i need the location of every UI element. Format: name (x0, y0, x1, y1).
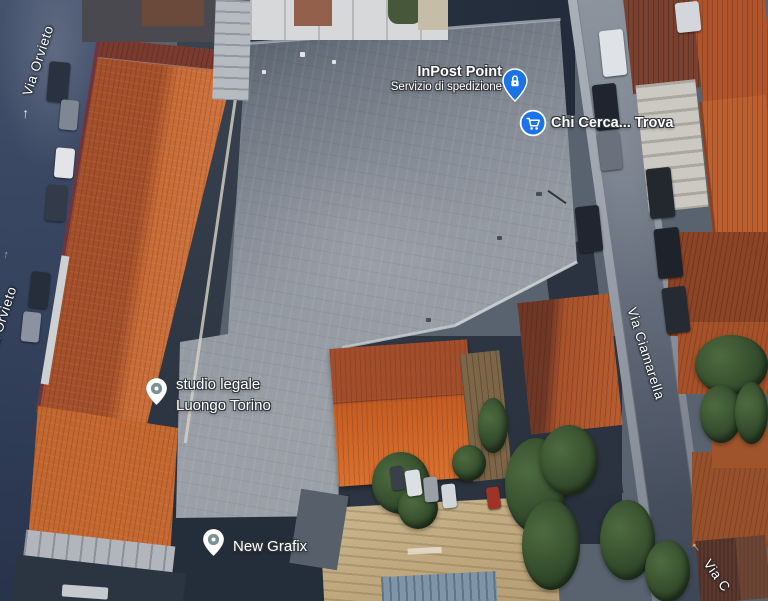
roof-vent-strip (408, 547, 442, 555)
block-topleft-dark (82, 0, 217, 42)
building-orange-roof-ne2 (699, 95, 768, 239)
roof-lighter-part (735, 535, 768, 600)
building-orange-mid-east (517, 294, 622, 435)
dark-car (46, 61, 70, 103)
tree (540, 425, 598, 495)
roof-vent (536, 192, 542, 196)
gray-car (20, 311, 41, 343)
dark-car (645, 167, 675, 219)
gray-car (59, 99, 80, 130)
roof-beige-patch (418, 0, 448, 30)
poi-inpost-subtitle: Servizio di spedizione (338, 81, 502, 93)
gray-car (423, 476, 439, 502)
white-car (54, 147, 76, 179)
tree (645, 540, 690, 601)
roof-ridge-line (333, 393, 471, 404)
roof-panel-blue (381, 571, 498, 601)
dark-car (575, 205, 604, 253)
dark-car (653, 227, 683, 279)
generic-poi-pin-icon[interactable] (202, 528, 225, 557)
roof-patch-redbrown (142, 0, 204, 26)
gray-car (597, 131, 623, 171)
poi-studio-legale-line2: Luongo Torino (176, 397, 271, 414)
chimney (300, 52, 305, 57)
roof-vent (426, 318, 431, 322)
tree-top (388, 0, 422, 24)
poi-studio-legale-label[interactable]: studio legale Luongo Torino (176, 376, 271, 414)
poi-inpost-title[interactable]: InPost Point (338, 64, 502, 80)
generic-poi-pin-icon[interactable] (145, 377, 168, 406)
white-car (599, 29, 628, 77)
tree (478, 398, 508, 453)
building-top-light-column (212, 0, 251, 101)
white-car (441, 483, 457, 508)
shopping-cart-circle-icon[interactable] (519, 109, 547, 137)
poi-studio-legale-line1[interactable]: studio legale (176, 376, 271, 393)
dark-car (44, 184, 67, 222)
chimney (332, 60, 336, 64)
tree (735, 382, 768, 444)
chimney (262, 70, 266, 74)
building-top-white-row (250, 0, 448, 40)
tree (522, 500, 580, 590)
poi-new-grafix-label[interactable]: New Grafix (233, 538, 307, 555)
poi-inpost-label[interactable]: InPost Point Servizio di spedizione (338, 64, 502, 93)
white-car (674, 1, 701, 33)
inpost-lock-pin-icon[interactable] (502, 68, 528, 102)
satellite-map-canvas[interactable]: ↑ ↑ ↑ Via Orvieto Via Orvieto Via Ciamar… (0, 0, 768, 601)
poi-chi-cerca-label[interactable]: Chi Cerca... Trova (551, 115, 674, 131)
courtyard-red-patch (294, 0, 332, 26)
tree (452, 445, 486, 481)
dark-car (28, 271, 51, 309)
roof-vent (497, 236, 502, 240)
